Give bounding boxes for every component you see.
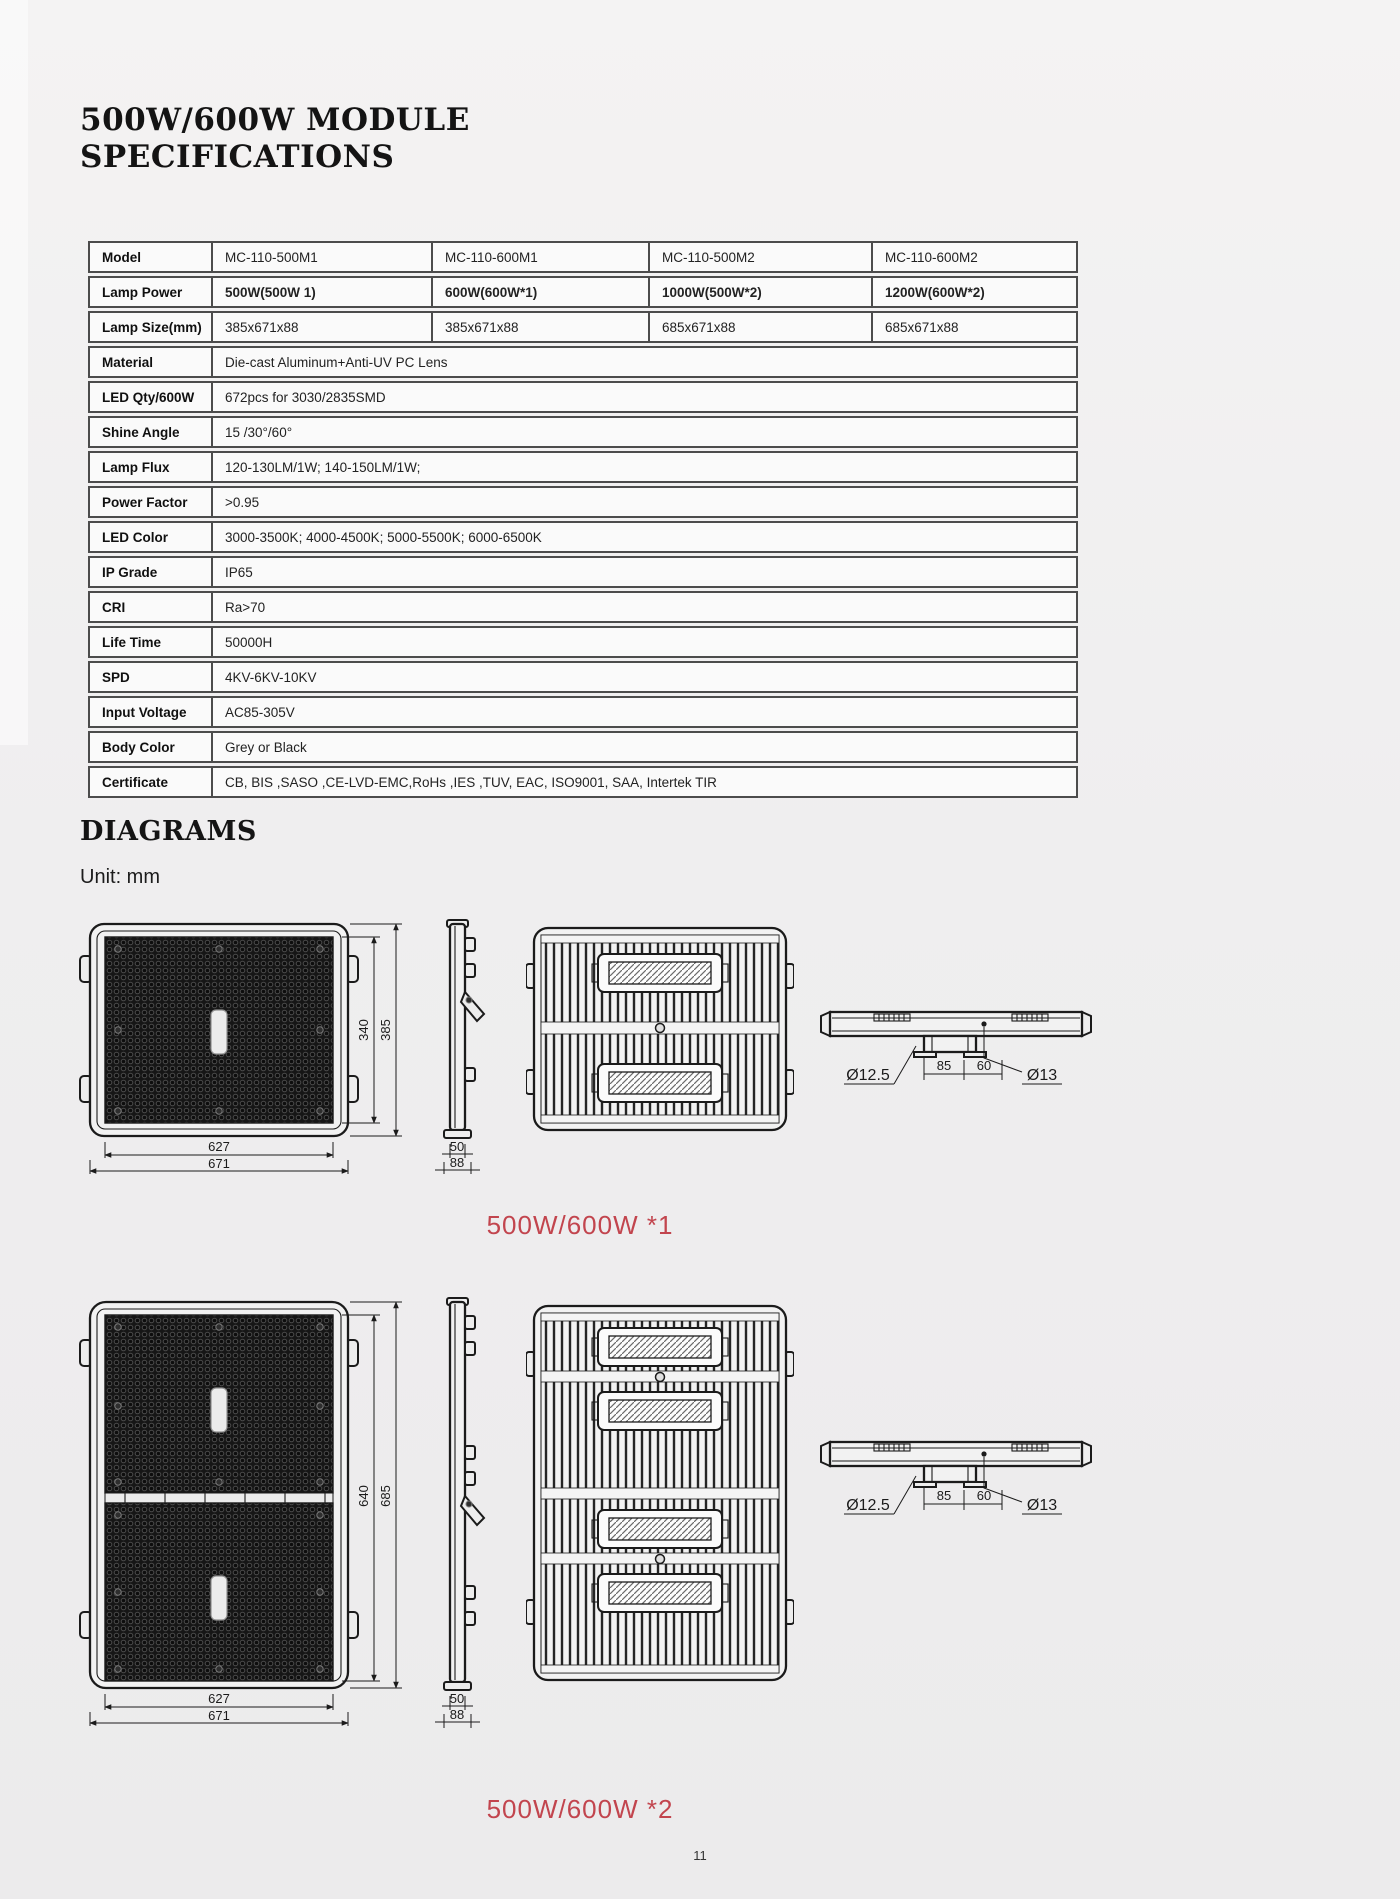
spec-value: CB, BIS ,SASO ,CE-LVD-EMC,RoHs ,IES ,TUV…: [213, 766, 1078, 798]
dim-hole-left: Ø12.5: [846, 1497, 890, 1514]
floodlight-top-body: [821, 1012, 1091, 1057]
spec-value: 3000-3500K; 4000-4500K; 5000-5500K; 6000…: [213, 521, 1078, 553]
table-row: Life Time 50000H: [88, 626, 1078, 658]
dim-height-outer: 685: [378, 1485, 393, 1507]
table-row: Material Die-cast Aluminum+Anti-UV PC Le…: [88, 346, 1078, 378]
spec-value: 385x671x88: [213, 311, 433, 343]
floodlight-front-body: [80, 924, 358, 1136]
diagram-caption-2: 500W/600W *2: [380, 1794, 780, 1825]
table-row: Lamp Size(mm) 385x671x88 385x671x88 685x…: [88, 311, 1078, 343]
dim-width-outer: 671: [208, 1708, 230, 1723]
spec-label: Life Time: [88, 626, 213, 658]
dim-width-inner: 627: [208, 1691, 230, 1706]
table-row: Model MC-110-500M1 MC-110-600M1 MC-110-5…: [88, 241, 1078, 273]
spec-value: 1000W(500W*2): [650, 276, 873, 308]
back-view-1-diagram: [526, 922, 794, 1154]
top-view-1-diagram: Ø12.5 85 60 Ø13: [816, 1000, 1108, 1112]
table-row: IP Grade IP65: [88, 556, 1078, 588]
spec-label: Power Factor: [88, 486, 213, 518]
spec-value: 685x671x88: [650, 311, 873, 343]
table-row: LED Color 3000-3500K; 4000-4500K; 5000-5…: [88, 521, 1078, 553]
spec-value: MC-110-500M1: [213, 241, 433, 273]
spec-label: Lamp Flux: [88, 451, 213, 483]
spec-value: MC-110-500M2: [650, 241, 873, 273]
page-title-line1: 500W/600W MODULE: [80, 102, 470, 139]
dim-span-b: 60: [977, 1488, 991, 1503]
spec-value: 500W(500W 1): [213, 276, 433, 308]
spec-label: IP Grade: [88, 556, 213, 588]
floodlight-side-body: [444, 1298, 484, 1690]
table-row: Body Color Grey or Black: [88, 731, 1078, 763]
dim-thickness: 50: [450, 1691, 464, 1706]
table-row: SPD 4KV-6KV-10KV: [88, 661, 1078, 693]
front-view-2-diagram: 640 685 627 671: [78, 1296, 408, 1728]
spec-label: CRI: [88, 591, 213, 623]
page-title-line2: SPECIFICATIONS: [80, 139, 470, 176]
page-margin-strip: [0, 0, 28, 745]
spec-value: AC85-305V: [213, 696, 1078, 728]
diagrams-heading: DIAGRAMS: [80, 816, 257, 847]
table-row: CRI Ra>70: [88, 591, 1078, 623]
dim-span-a: 85: [937, 1488, 951, 1503]
table-row: Certificate CB, BIS ,SASO ,CE-LVD-EMC,Ro…: [88, 766, 1078, 798]
dim-depth: 88: [450, 1155, 464, 1170]
page-number: 11: [0, 1848, 1400, 1863]
driver-bracket-2: [592, 1064, 728, 1102]
table-row: Shine Angle 15 /30°/60°: [88, 416, 1078, 448]
dim-height-inner: 640: [356, 1485, 371, 1507]
driver-bracket-4: [592, 1574, 728, 1612]
floodlight-side-body: [444, 920, 484, 1138]
spec-value: 685x671x88: [873, 311, 1078, 343]
spec-sheet-page: 500W/600W MODULE SPECIFICATIONS Model MC…: [0, 0, 1400, 1899]
floodlight-front-body: [80, 1302, 358, 1688]
floodlight-top-body: [821, 1442, 1091, 1487]
spec-value: Die-cast Aluminum+Anti-UV PC Lens: [213, 346, 1078, 378]
table-row: Lamp Power 500W(500W 1) 600W(600W*1) 100…: [88, 276, 1078, 308]
table-row: LED Qty/600W 672pcs for 3030/2835SMD: [88, 381, 1078, 413]
spec-value: MC-110-600M2: [873, 241, 1078, 273]
driver-bracket-1: [592, 954, 728, 992]
back-view-2-diagram: [526, 1300, 794, 1704]
spec-label: Model: [88, 241, 213, 273]
side-view-2-diagram: 50 88: [416, 1296, 500, 1728]
spec-label: SPD: [88, 661, 213, 693]
dim-width-outer: 671: [208, 1156, 230, 1171]
table-row: Lamp Flux 120-130LM/1W; 140-150LM/1W;: [88, 451, 1078, 483]
spec-value: 1200W(600W*2): [873, 276, 1078, 308]
spec-value: 672pcs for 3030/2835SMD: [213, 381, 1078, 413]
page-title: 500W/600W MODULE SPECIFICATIONS: [80, 102, 470, 175]
dim-span-b: 60: [977, 1058, 991, 1073]
spec-value: MC-110-600M1: [433, 241, 650, 273]
dim-height-inner: 340: [356, 1019, 371, 1041]
spec-value: >0.95: [213, 486, 1078, 518]
dim-depth: 88: [450, 1707, 464, 1722]
spec-label: Lamp Size(mm): [88, 311, 213, 343]
side-view-1-diagram: 50 88: [416, 918, 500, 1174]
center-screw: [656, 1024, 665, 1033]
spec-label: Body Color: [88, 731, 213, 763]
driver-bracket-2: [592, 1392, 728, 1430]
specifications-table: Model MC-110-500M1 MC-110-600M1 MC-110-5…: [88, 238, 1078, 801]
dim-thickness: 50: [450, 1139, 464, 1154]
spec-label: Certificate: [88, 766, 213, 798]
spec-value: 15 /30°/60°: [213, 416, 1078, 448]
dim-hole-left: Ø12.5: [846, 1067, 890, 1084]
dim-hole-right: Ø13: [1027, 1497, 1057, 1514]
diagram-caption-1: 500W/600W *1: [380, 1210, 780, 1241]
dim-height-outer: 385: [378, 1019, 393, 1041]
floodlight-back-body: [526, 928, 794, 1130]
floodlight-back-body: [526, 1306, 794, 1680]
spec-value: Ra>70: [213, 591, 1078, 623]
center-screw: [656, 1373, 665, 1382]
spec-value: 50000H: [213, 626, 1078, 658]
spec-label: Input Voltage: [88, 696, 213, 728]
spec-value: IP65: [213, 556, 1078, 588]
spec-label: Shine Angle: [88, 416, 213, 448]
spec-label: Material: [88, 346, 213, 378]
spec-label: Lamp Power: [88, 276, 213, 308]
spec-value: 385x671x88: [433, 311, 650, 343]
front-view-1-diagram: 340 385 627 671: [78, 918, 408, 1174]
table-row: Input Voltage AC85-305V: [88, 696, 1078, 728]
spec-value: Grey or Black: [213, 731, 1078, 763]
dim-width-inner: 627: [208, 1139, 230, 1154]
unit-label: Unit: mm: [80, 866, 160, 889]
dim-hole-right: Ø13: [1027, 1067, 1057, 1084]
spec-value: 120-130LM/1W; 140-150LM/1W;: [213, 451, 1078, 483]
spec-label: LED Qty/600W: [88, 381, 213, 413]
table-row: Power Factor >0.95: [88, 486, 1078, 518]
top-view-2-diagram: Ø12.5 85 60 Ø13: [816, 1430, 1108, 1542]
spec-value: 4KV-6KV-10KV: [213, 661, 1078, 693]
driver-bracket-1: [592, 1328, 728, 1366]
spec-value: 600W(600W*1): [433, 276, 650, 308]
driver-bracket-3: [592, 1510, 728, 1548]
spec-label: LED Color: [88, 521, 213, 553]
center-screw: [656, 1555, 665, 1564]
dim-span-a: 85: [937, 1058, 951, 1073]
